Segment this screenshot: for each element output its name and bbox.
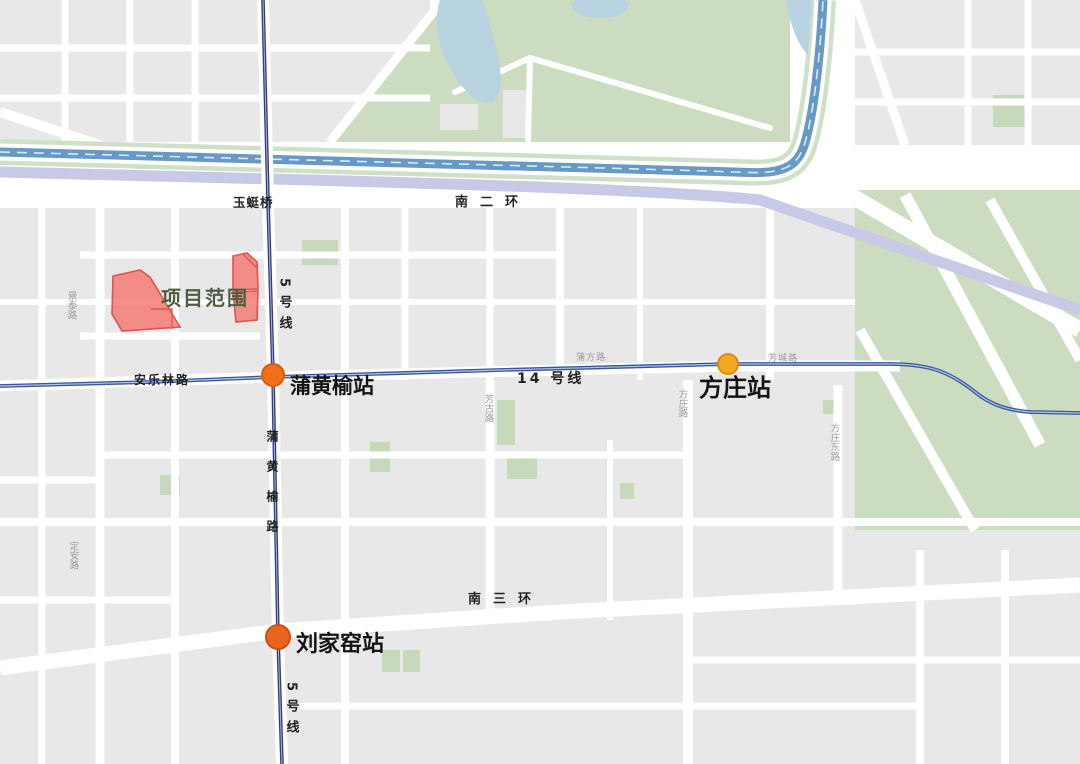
road-label-nanerhuan: 南二环 <box>455 194 530 210</box>
road-label-pufang: 蒲方路 <box>576 351 606 363</box>
project-parcel-north <box>233 253 258 290</box>
station-dot-puhuangyu <box>262 364 284 386</box>
road-label-fangzhuangdong: 方庄东路 <box>829 422 841 462</box>
road-label-nansanhuan: 南三环 <box>468 591 543 607</box>
station-dot-fangzhuang <box>718 354 738 374</box>
station-label-puhuangyu: 蒲黄榆站 <box>290 374 374 398</box>
road-label-jingtai: 景泰路 <box>66 291 78 320</box>
road-label-yutingqiao: 玉蜓桥 <box>233 195 274 210</box>
line5-label-top: 5号线 <box>277 278 293 337</box>
road-label-fanggu: 芳古路 <box>483 393 495 423</box>
road-label-anlelin: 安乐林路 <box>134 372 190 387</box>
line14-label: 14 号线 <box>517 370 584 387</box>
map-canvas: 项目范围 蒲黄榆站 方庄站 刘家窑站 5号线 5号线 14 号线 玉蜓桥 南二环… <box>0 0 1080 764</box>
road-label-fangcheng: 芳城路 <box>768 352 798 364</box>
station-label-fangzhuang: 方庄站 <box>699 374 771 402</box>
road-label-fangzhuanglu: 方庄路 <box>677 388 689 418</box>
city-map: 项目范围 蒲黄榆站 方庄站 刘家窑站 5号线 5号线 14 号线 玉蜓桥 南二环… <box>0 0 1080 764</box>
road-label-dingan: 定安路 <box>68 540 80 570</box>
line5-label-bottom: 5号线 <box>284 682 300 741</box>
station-label-liujiayao: 刘家窑站 <box>296 631 384 657</box>
station-dot-liujiayao <box>266 625 290 649</box>
project-area-label: 项目范围 <box>161 286 249 310</box>
road-label-puhuangyulu: 蒲黄榆路 <box>265 429 279 550</box>
